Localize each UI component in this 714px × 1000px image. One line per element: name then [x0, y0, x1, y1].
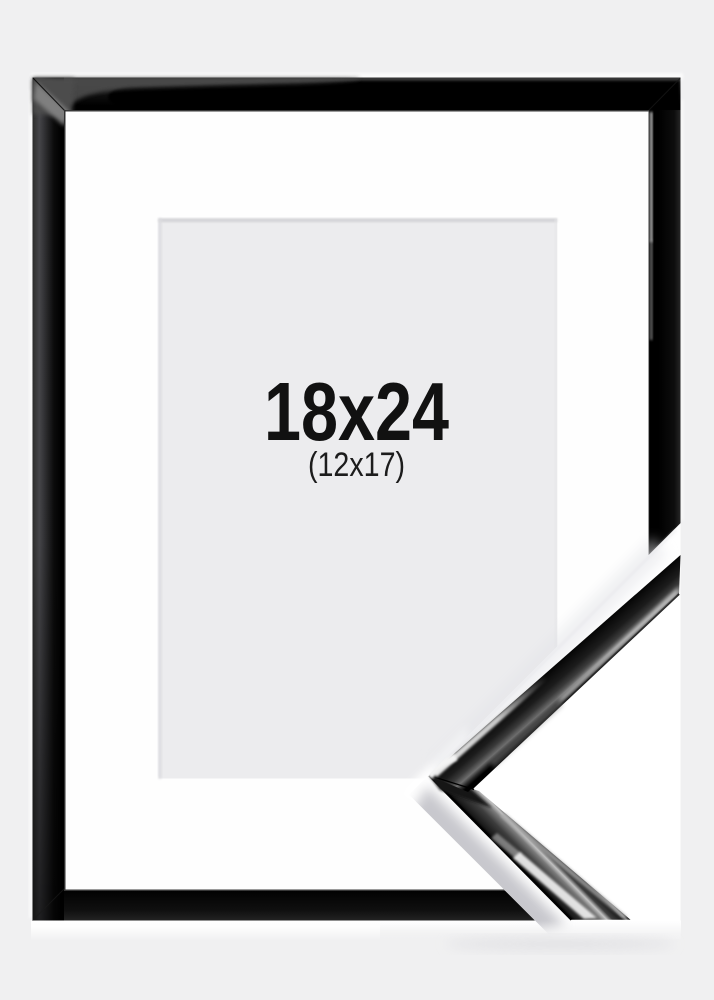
svg-text:(12x17): (12x17)	[308, 446, 405, 484]
svg-text:18x24: 18x24	[264, 365, 449, 458]
